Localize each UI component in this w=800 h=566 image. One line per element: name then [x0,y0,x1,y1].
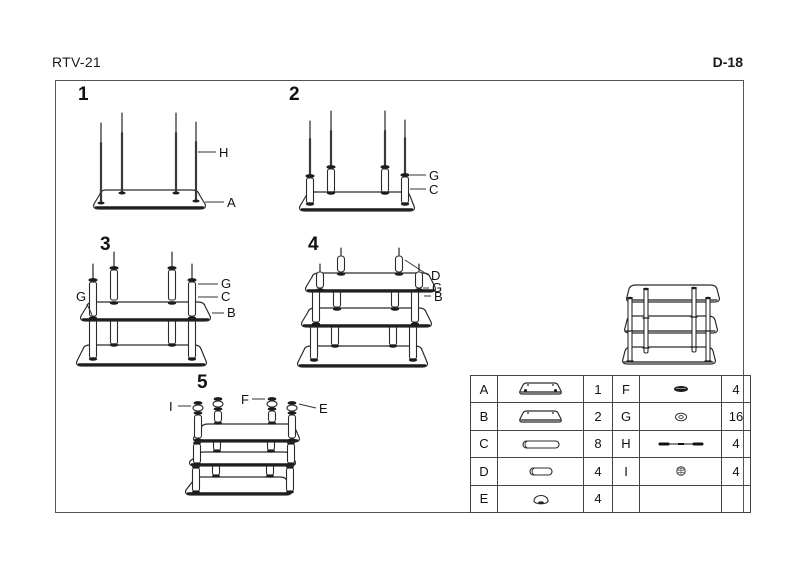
part-letter-cell: E [471,485,498,512]
part-icon-cell [640,485,722,512]
step-4-diagram: D G B [283,244,468,379]
part-qty-cell: 4 [722,430,751,457]
part-icon-cell [498,485,584,512]
assembly-instruction-sheet: RTV-21 D-18 1 H A 2 [0,0,800,566]
part-letter-cell: B [471,403,498,430]
step-1-number: 1 [78,84,89,106]
step-2-diagram: G C [293,106,468,218]
part-qty-cell: 4 [722,458,751,485]
part-qty-cell: 1 [584,376,613,403]
label-i: I [169,399,173,414]
parts-table: A 1 F 4 [470,375,751,513]
part-letter-cell: F [613,376,640,403]
label-b: B [434,289,443,304]
part-icon-cell [640,430,722,457]
part-letter-cell: C [471,430,498,457]
bottom-shelf-icon [511,378,571,400]
part-icon-cell [498,376,584,403]
base-shelf-a [94,190,206,209]
threaded-rod-icon [651,433,711,455]
step-5-diagram: I F E [160,380,380,510]
part-qty-cell: 2 [584,403,613,430]
base-shelf-a [186,477,292,495]
diagram-frame: 1 H A 2 [55,80,744,513]
part-qty-cell [722,485,751,512]
part-letter-cell [613,485,640,512]
assembled-product-view [616,281,734,369]
part-letter-cell: H [613,430,640,457]
label-f: F [241,392,249,407]
part-letter-cell: I [613,458,640,485]
part-icon-cell [498,458,584,485]
part-letter-cell: G [613,403,640,430]
step-2-number: 2 [289,84,300,106]
part-qty-cell: 4 [722,376,751,403]
part-icon-cell [640,403,722,430]
washer-icon [651,406,711,428]
label-h: H [219,145,228,160]
part-qty-cell: 4 [584,485,613,512]
sheet-code: D-18 [713,54,743,70]
step-1-diagram: H A [88,108,248,216]
label-c: C [429,182,438,197]
part-qty-cell: 16 [722,403,751,430]
part-icon-cell [640,376,722,403]
dome-cap-icon [511,488,571,510]
middle-shelf-b [190,452,296,466]
label-e-leader [299,404,316,408]
part-icon-cell [498,403,584,430]
part-letter-cell: A [471,376,498,403]
parts-row-a-f: A 1 F 4 [471,376,751,403]
label-g-left: G [76,289,86,304]
parts-row-d-i: D 4 I 4 [471,458,751,485]
long-tube-icon [511,433,571,455]
label-a: A [227,195,236,210]
shelves [623,285,720,364]
part-icon-cell [498,430,584,457]
label-c: C [221,289,230,304]
label-g: G [429,168,439,183]
screw-nut-icon [651,460,711,482]
parts-row-c-h: C 8 H 4 [471,430,751,457]
model-code: RTV-21 [52,54,101,70]
top-shelf-b [194,424,300,442]
part-icon-cell [640,458,722,485]
part-letter-cell: D [471,458,498,485]
part-qty-cell: 8 [584,430,613,457]
parts-row-e: E 4 [471,485,751,512]
base-shelf-a [300,192,415,211]
shelf-icon [511,406,571,428]
top-cap-disc-icon [651,378,711,400]
label-b: B [227,305,236,320]
parts-row-b-g: B 2 G 16 [471,403,751,430]
part-qty-cell: 4 [584,458,613,485]
label-e: E [319,401,328,416]
short-tube-icon [511,460,571,482]
step-3-diagram: G G C B [62,246,247,371]
